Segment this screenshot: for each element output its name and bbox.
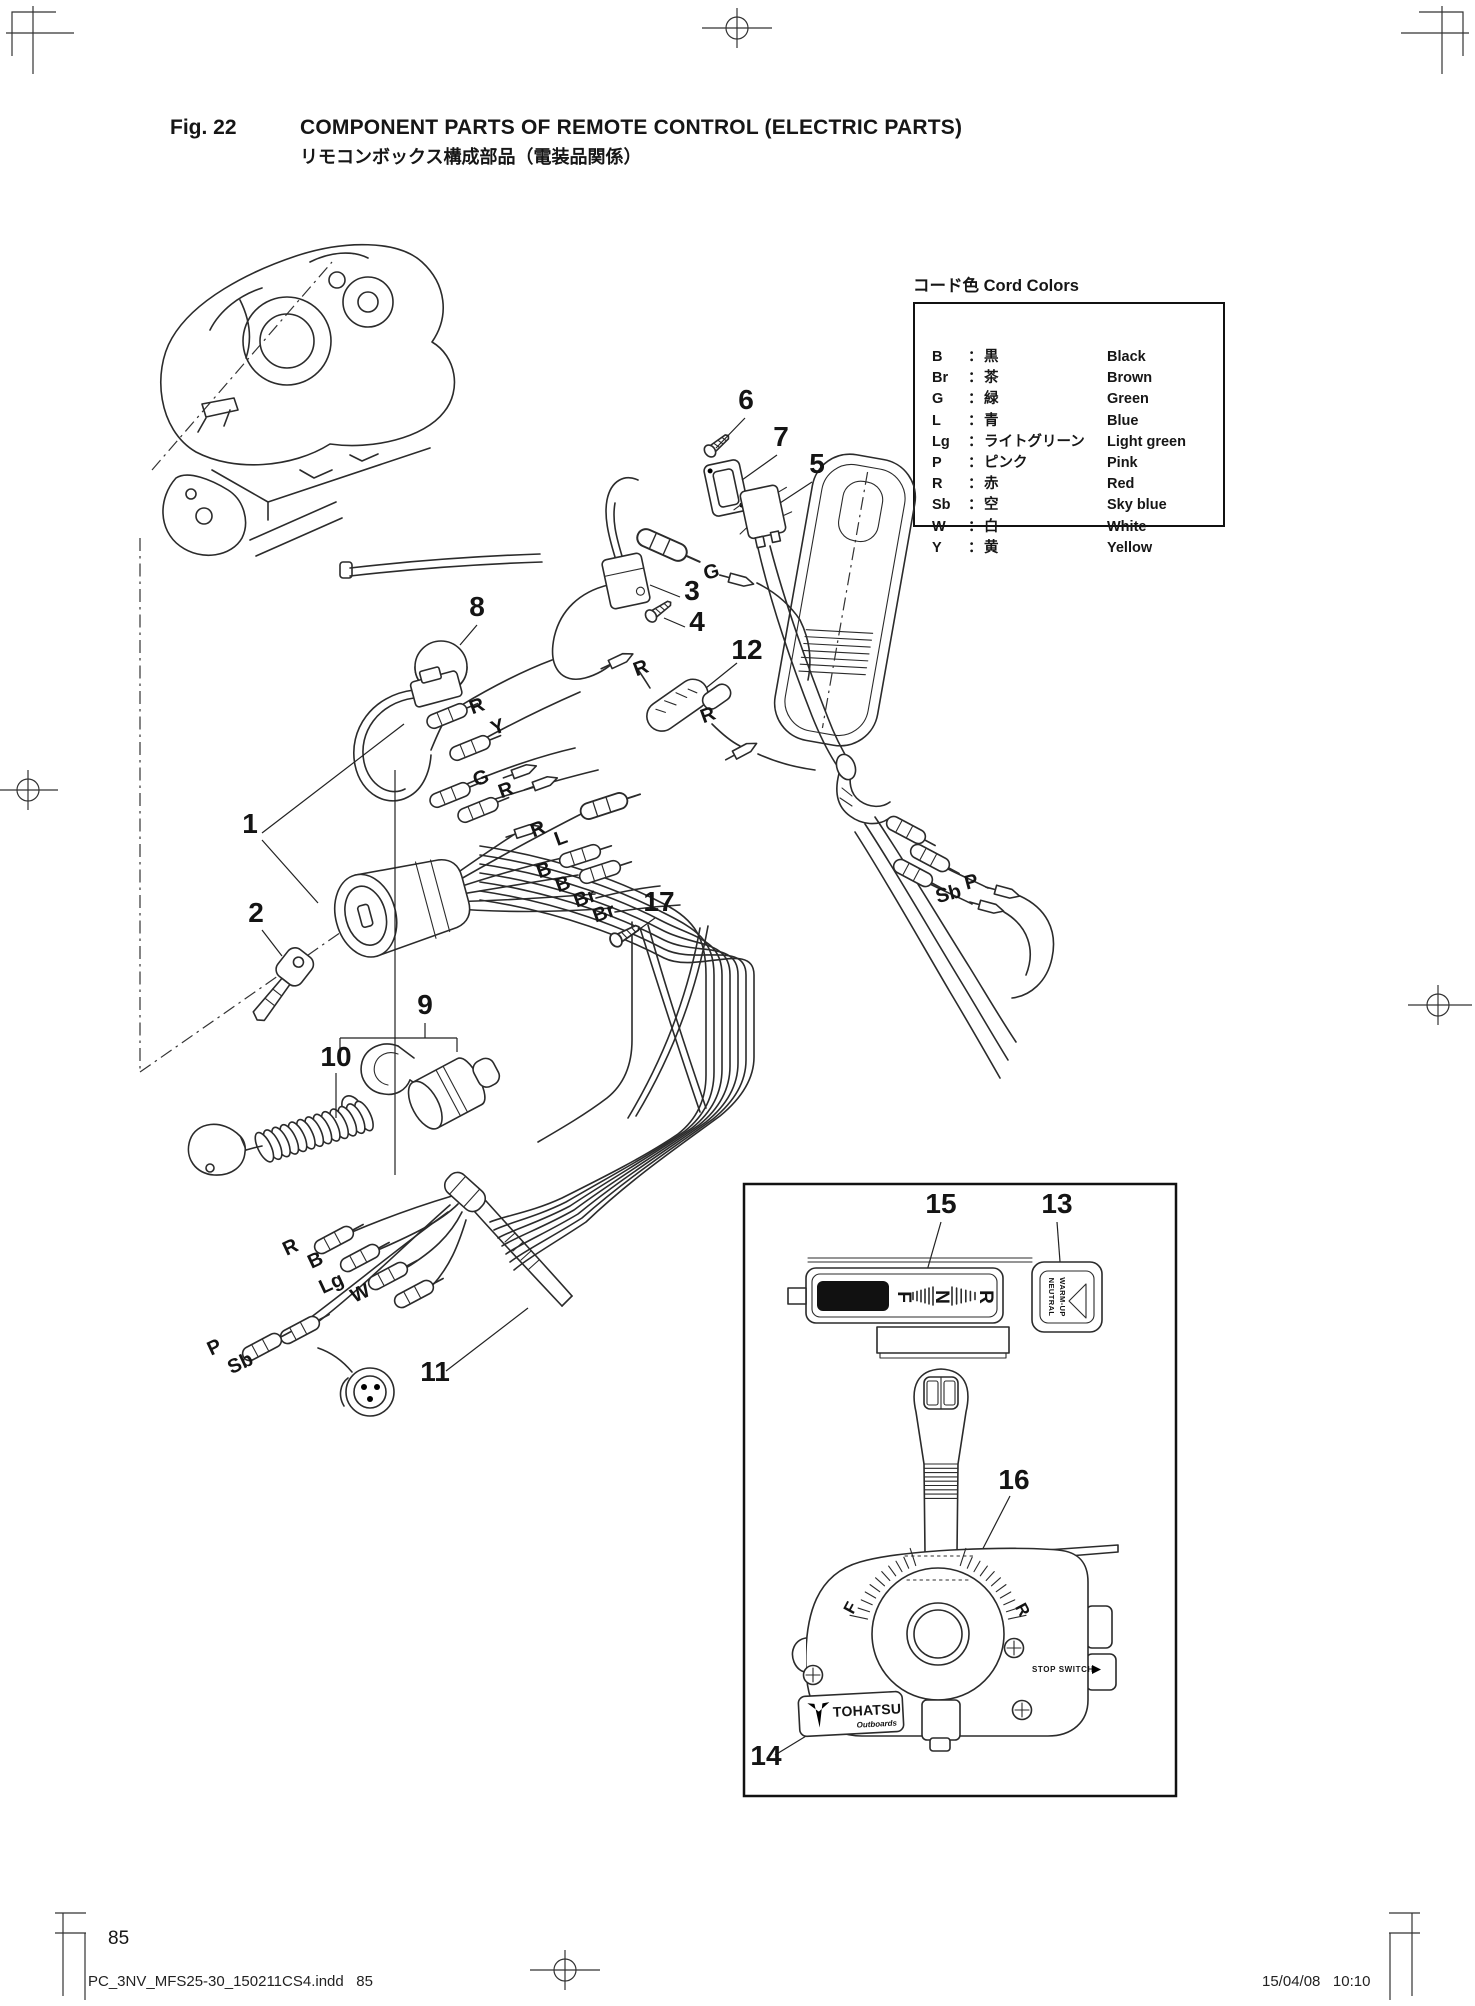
callout-13: 13 [1041, 1188, 1072, 1219]
neutral-label: NEUTRAL [1047, 1278, 1056, 1317]
main-switch-part-1 [326, 848, 476, 964]
footer-filename: PC_3NV_MFS25-30_150211CS4.indd 85 [88, 1973, 373, 1990]
main-wire-bundle [480, 846, 754, 1270]
switch-box-part-3 [553, 478, 704, 679]
mounting-plate [877, 1327, 1009, 1358]
register-mark-bottom [530, 1950, 600, 1990]
wire-label-R: R [279, 1234, 302, 1260]
stop-switch-label: STOP SWITCH [1032, 1665, 1094, 1674]
fuse-holder-part-12 [641, 663, 740, 746]
warmup-label: WARM-UP [1058, 1277, 1067, 1316]
callout-16: 16 [998, 1464, 1029, 1495]
lanyard-stop-switch-parts-9-10 [188, 770, 508, 1175]
wire-label-G: G [701, 560, 722, 585]
crop-marks [0, 6, 1472, 2000]
wire-label-G: G [470, 765, 492, 791]
gear-letter-F: F [893, 1291, 914, 1303]
register-mark-left [0, 770, 58, 810]
side-cover-drawing [769, 448, 922, 752]
exploded-parts-diagram: NEUTRAL WARM-UP [0, 0, 1475, 2006]
neutral-warmup-lever: NEUTRAL WARM-UP [1032, 1262, 1102, 1332]
callout-15: 15 [925, 1188, 956, 1219]
callout-5: 5 [809, 448, 825, 479]
gear-letter-R: R [975, 1290, 996, 1304]
wire-label-P: P [204, 1335, 225, 1361]
wire-label-L: L [551, 826, 570, 851]
wire-label-R: R [466, 693, 488, 719]
callout-11: 11 [420, 1356, 450, 1387]
footer-timestamp: 15/04/08 10:10 [1262, 1973, 1370, 1990]
callout-12: 12 [731, 634, 762, 665]
lanyard-coil [252, 1099, 377, 1165]
callout-1: 1 [242, 808, 258, 839]
register-mark-right [1408, 985, 1472, 1025]
wire-label-Sb: Sb [933, 880, 963, 908]
remote-control-inset: NEUTRAL WARM-UP [744, 1184, 1176, 1796]
callout-6: 6 [738, 384, 754, 415]
callout-8: 8 [469, 591, 485, 622]
catalog-page: Fig. 22 COMPONENT PARTS OF REMOTE CONTRO… [0, 0, 1475, 2006]
wire-color-labels: GRYGRRRRLBBBrBrPSbRBLgWPSb [204, 560, 981, 1379]
gear-letter-N: N [931, 1290, 952, 1304]
key-part-2 [243, 944, 317, 1027]
callout-2: 2 [248, 897, 264, 928]
brand-label: TOHATSU Outboards [798, 1691, 904, 1736]
remote-control-housing-drawing [161, 245, 542, 578]
indicator-window [817, 1281, 889, 1311]
boundary-dash-dot-lines [140, 262, 344, 1072]
wire-label-Lg: Lg [316, 1268, 347, 1298]
callout-9: 9 [417, 989, 433, 1020]
gear-position-letters: FNR [893, 1290, 996, 1304]
register-mark-top [702, 8, 772, 48]
cable-elbow-and-connectors [833, 752, 1021, 916]
wire-label-R: R [527, 816, 549, 842]
wire-harness-part-11 [240, 1168, 572, 1416]
wire-label-R: R [495, 777, 517, 803]
page-number: 85 [108, 1928, 129, 1950]
callout-17: 17 [643, 886, 674, 917]
callout-10: 10 [320, 1041, 351, 1072]
callout-4: 4 [689, 606, 705, 637]
wire-label-R: R [630, 655, 652, 681]
remote-control-box-body: F R STOP SWITCH TOHATSU Outboards [793, 1545, 1119, 1751]
wire-label-P: P [962, 870, 981, 895]
control-lever-handle [914, 1369, 968, 1553]
callout-7: 7 [773, 421, 789, 452]
callout-3: 3 [684, 575, 700, 606]
callout-14: 14 [750, 1740, 782, 1771]
